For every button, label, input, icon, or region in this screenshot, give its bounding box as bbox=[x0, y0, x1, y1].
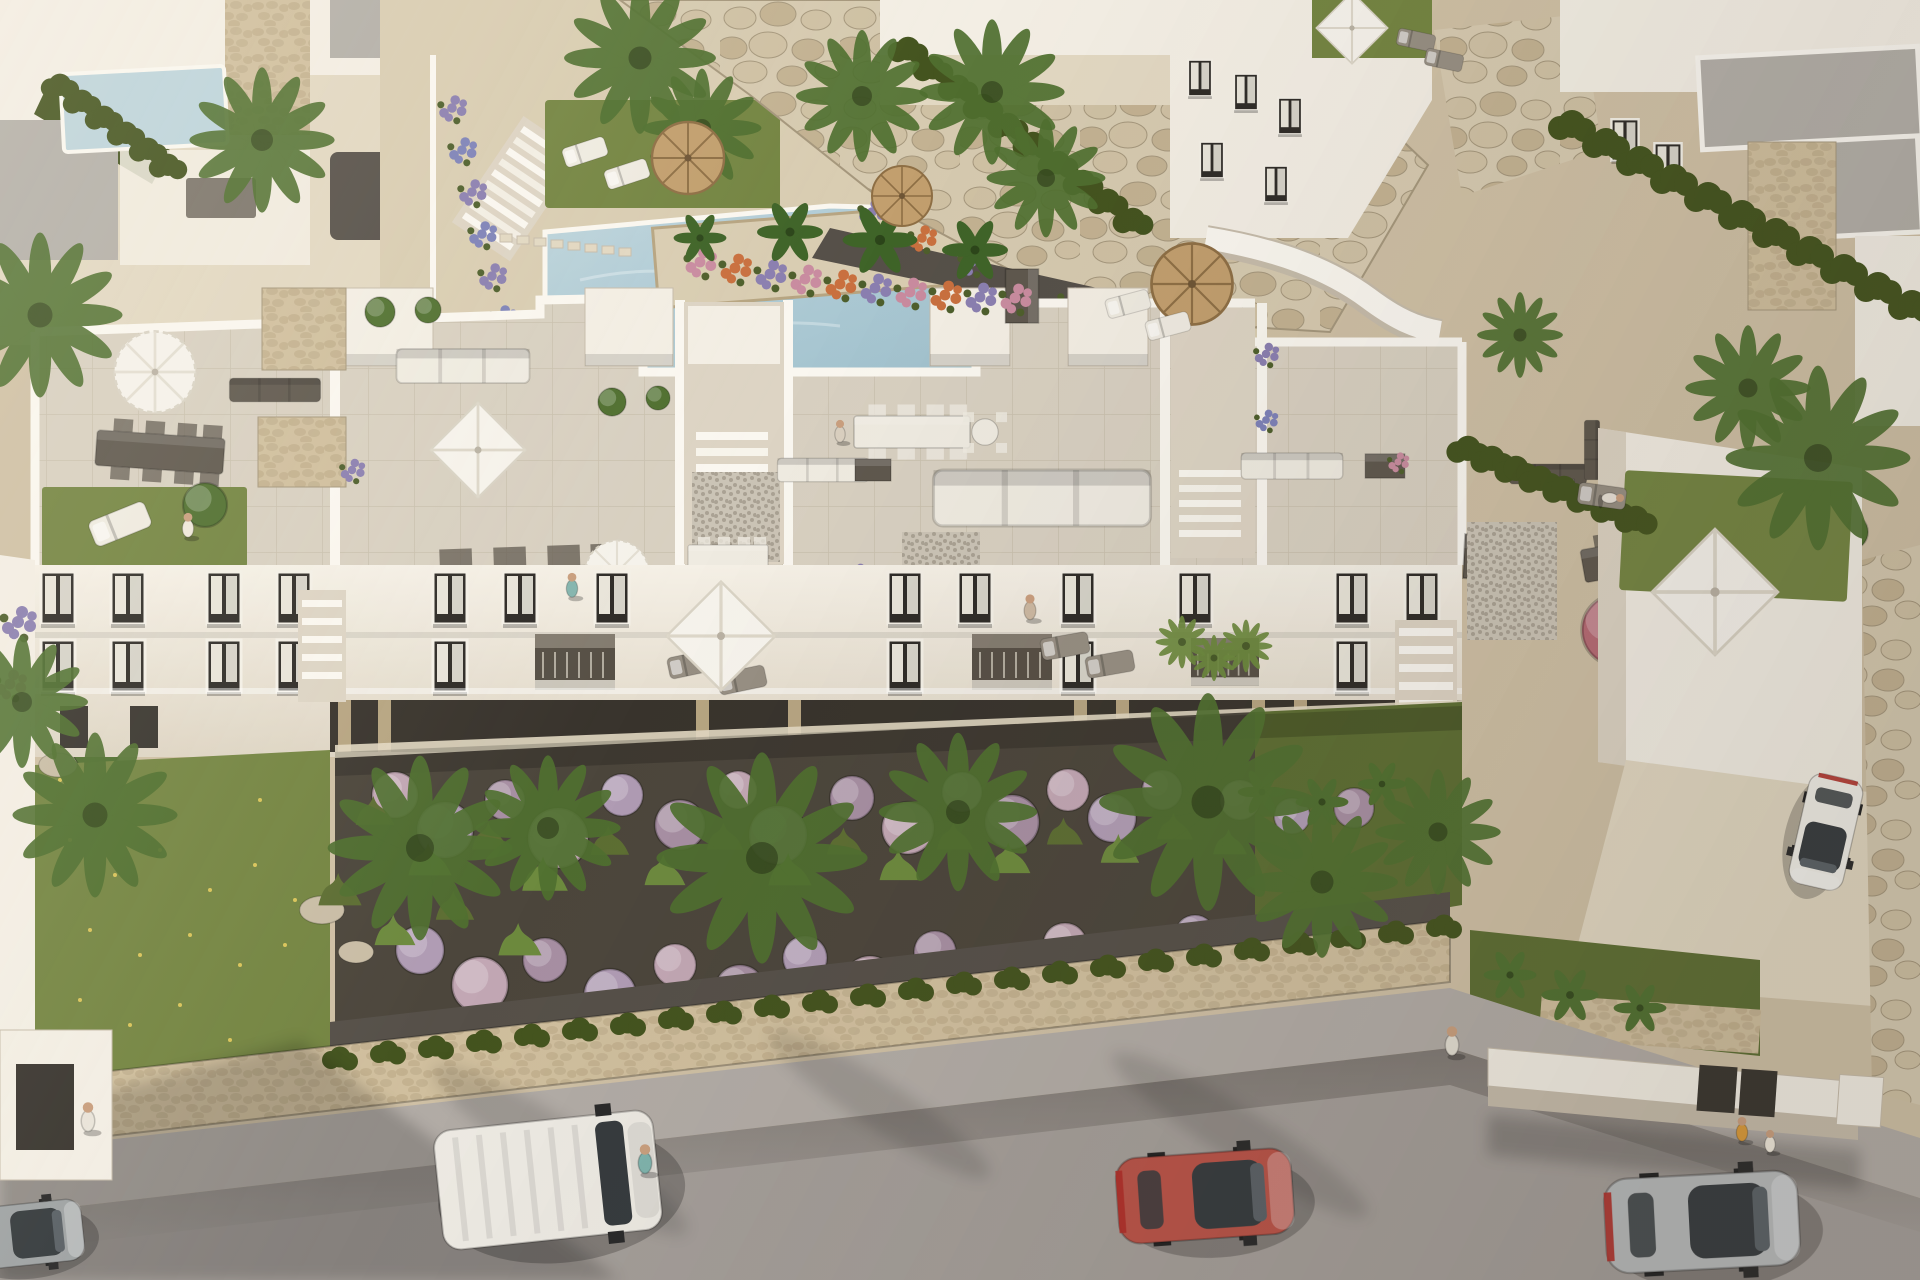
stair-step bbox=[302, 654, 342, 661]
window bbox=[1200, 142, 1224, 181]
window bbox=[433, 640, 467, 696]
stair-step bbox=[1399, 682, 1453, 690]
stepping-stone bbox=[517, 236, 529, 244]
window bbox=[1061, 572, 1095, 628]
straw-parasol bbox=[1152, 244, 1233, 325]
stair-step bbox=[302, 600, 342, 607]
shade bbox=[1068, 354, 1148, 366]
window bbox=[1188, 60, 1212, 99]
stone-clad-tower bbox=[262, 288, 346, 370]
window bbox=[595, 572, 629, 628]
balcony bbox=[535, 634, 615, 690]
stepping-stone bbox=[551, 240, 563, 248]
stone-boundary-wall bbox=[1862, 545, 1920, 1105]
hut-doorway bbox=[16, 1064, 74, 1150]
window bbox=[111, 572, 145, 628]
stepping-stone bbox=[602, 246, 614, 254]
stair-step bbox=[696, 448, 768, 456]
feature-shrub bbox=[415, 297, 441, 323]
stair-step bbox=[302, 636, 342, 643]
window bbox=[1264, 166, 1288, 205]
window bbox=[503, 572, 537, 628]
stepping-stone bbox=[568, 242, 580, 250]
stepping-stone bbox=[500, 234, 512, 242]
villa-flat-roof-gray bbox=[1698, 46, 1920, 149]
window bbox=[1405, 572, 1439, 628]
meadow-flower bbox=[113, 873, 117, 877]
storage-box bbox=[855, 459, 891, 481]
outdoor-sofa-white bbox=[1241, 453, 1343, 479]
meadow-flower bbox=[293, 898, 297, 902]
stepping-stone bbox=[619, 248, 631, 256]
dining-set-white bbox=[854, 404, 970, 459]
window bbox=[888, 640, 922, 696]
dining-set-dark bbox=[94, 417, 226, 487]
stair-step bbox=[1179, 485, 1241, 492]
stepping-stone bbox=[534, 238, 546, 246]
gate-pillar bbox=[1836, 1075, 1883, 1128]
outdoor-sofa-dark bbox=[1584, 420, 1599, 480]
stair-step bbox=[302, 672, 342, 679]
shade bbox=[930, 354, 1010, 366]
fringed-parasol bbox=[115, 332, 196, 413]
ball-shrub bbox=[1047, 769, 1089, 811]
entrance-gate bbox=[1738, 1069, 1777, 1117]
window bbox=[433, 572, 467, 628]
meadow-flower bbox=[188, 933, 192, 937]
meadow-flower bbox=[128, 1023, 132, 1027]
feature-shrub bbox=[365, 297, 395, 327]
feature-shrub bbox=[598, 388, 626, 416]
facade-stair-west bbox=[298, 590, 346, 702]
meadow-flower bbox=[238, 963, 242, 967]
window bbox=[207, 572, 241, 628]
entrance-door bbox=[130, 706, 158, 748]
window bbox=[207, 640, 241, 696]
stair-step bbox=[1399, 628, 1453, 636]
entrance-gate bbox=[1696, 1065, 1737, 1114]
stair-step bbox=[1399, 646, 1453, 654]
window bbox=[1278, 98, 1302, 137]
meadow-flower bbox=[258, 798, 262, 802]
straw-parasol bbox=[652, 122, 724, 194]
meadow-flower bbox=[208, 888, 212, 892]
stair-step bbox=[1179, 470, 1241, 477]
stair-step bbox=[1179, 500, 1241, 507]
outdoor-sofa-white bbox=[397, 349, 530, 383]
corner-utility-hut bbox=[0, 1030, 112, 1180]
outdoor-sofa-white bbox=[934, 470, 1151, 526]
villa-wall bbox=[1855, 236, 1920, 426]
render-canvas bbox=[0, 0, 1920, 1280]
stair-step bbox=[302, 618, 342, 625]
window bbox=[888, 572, 922, 628]
window bbox=[41, 572, 75, 628]
stair-step bbox=[696, 432, 768, 440]
palm-tree bbox=[1477, 292, 1563, 378]
window bbox=[1335, 640, 1369, 696]
stair-tower-east bbox=[1171, 308, 1255, 558]
meadow-flower bbox=[138, 953, 142, 957]
meadow-flower bbox=[78, 998, 82, 1002]
boulder bbox=[338, 941, 373, 963]
pebble-court bbox=[1467, 522, 1557, 640]
ball-shrub bbox=[654, 944, 696, 986]
window bbox=[958, 572, 992, 628]
window bbox=[111, 640, 145, 696]
landing bbox=[688, 306, 780, 364]
window bbox=[1335, 572, 1369, 628]
straw-parasol bbox=[872, 166, 932, 226]
feature-shrub bbox=[646, 386, 670, 410]
stair-step bbox=[1399, 664, 1453, 672]
meadow-flower bbox=[228, 1038, 232, 1042]
meadow-flower bbox=[253, 863, 257, 867]
stone-clad-box bbox=[258, 417, 346, 487]
aerial-render-scene bbox=[0, 0, 1920, 1280]
shade bbox=[585, 354, 673, 366]
stone-pillar bbox=[338, 700, 351, 752]
meadow-flower bbox=[88, 928, 92, 932]
window bbox=[1234, 74, 1258, 113]
outdoor-sofa-dark bbox=[230, 378, 321, 401]
stair-step bbox=[1179, 515, 1241, 522]
stair-step bbox=[1179, 530, 1241, 537]
stepping-stone bbox=[585, 244, 597, 252]
meadow-flower bbox=[178, 1003, 182, 1007]
stair-step bbox=[696, 464, 768, 472]
meadow-flower bbox=[283, 943, 287, 947]
shade-face bbox=[1598, 428, 1626, 766]
